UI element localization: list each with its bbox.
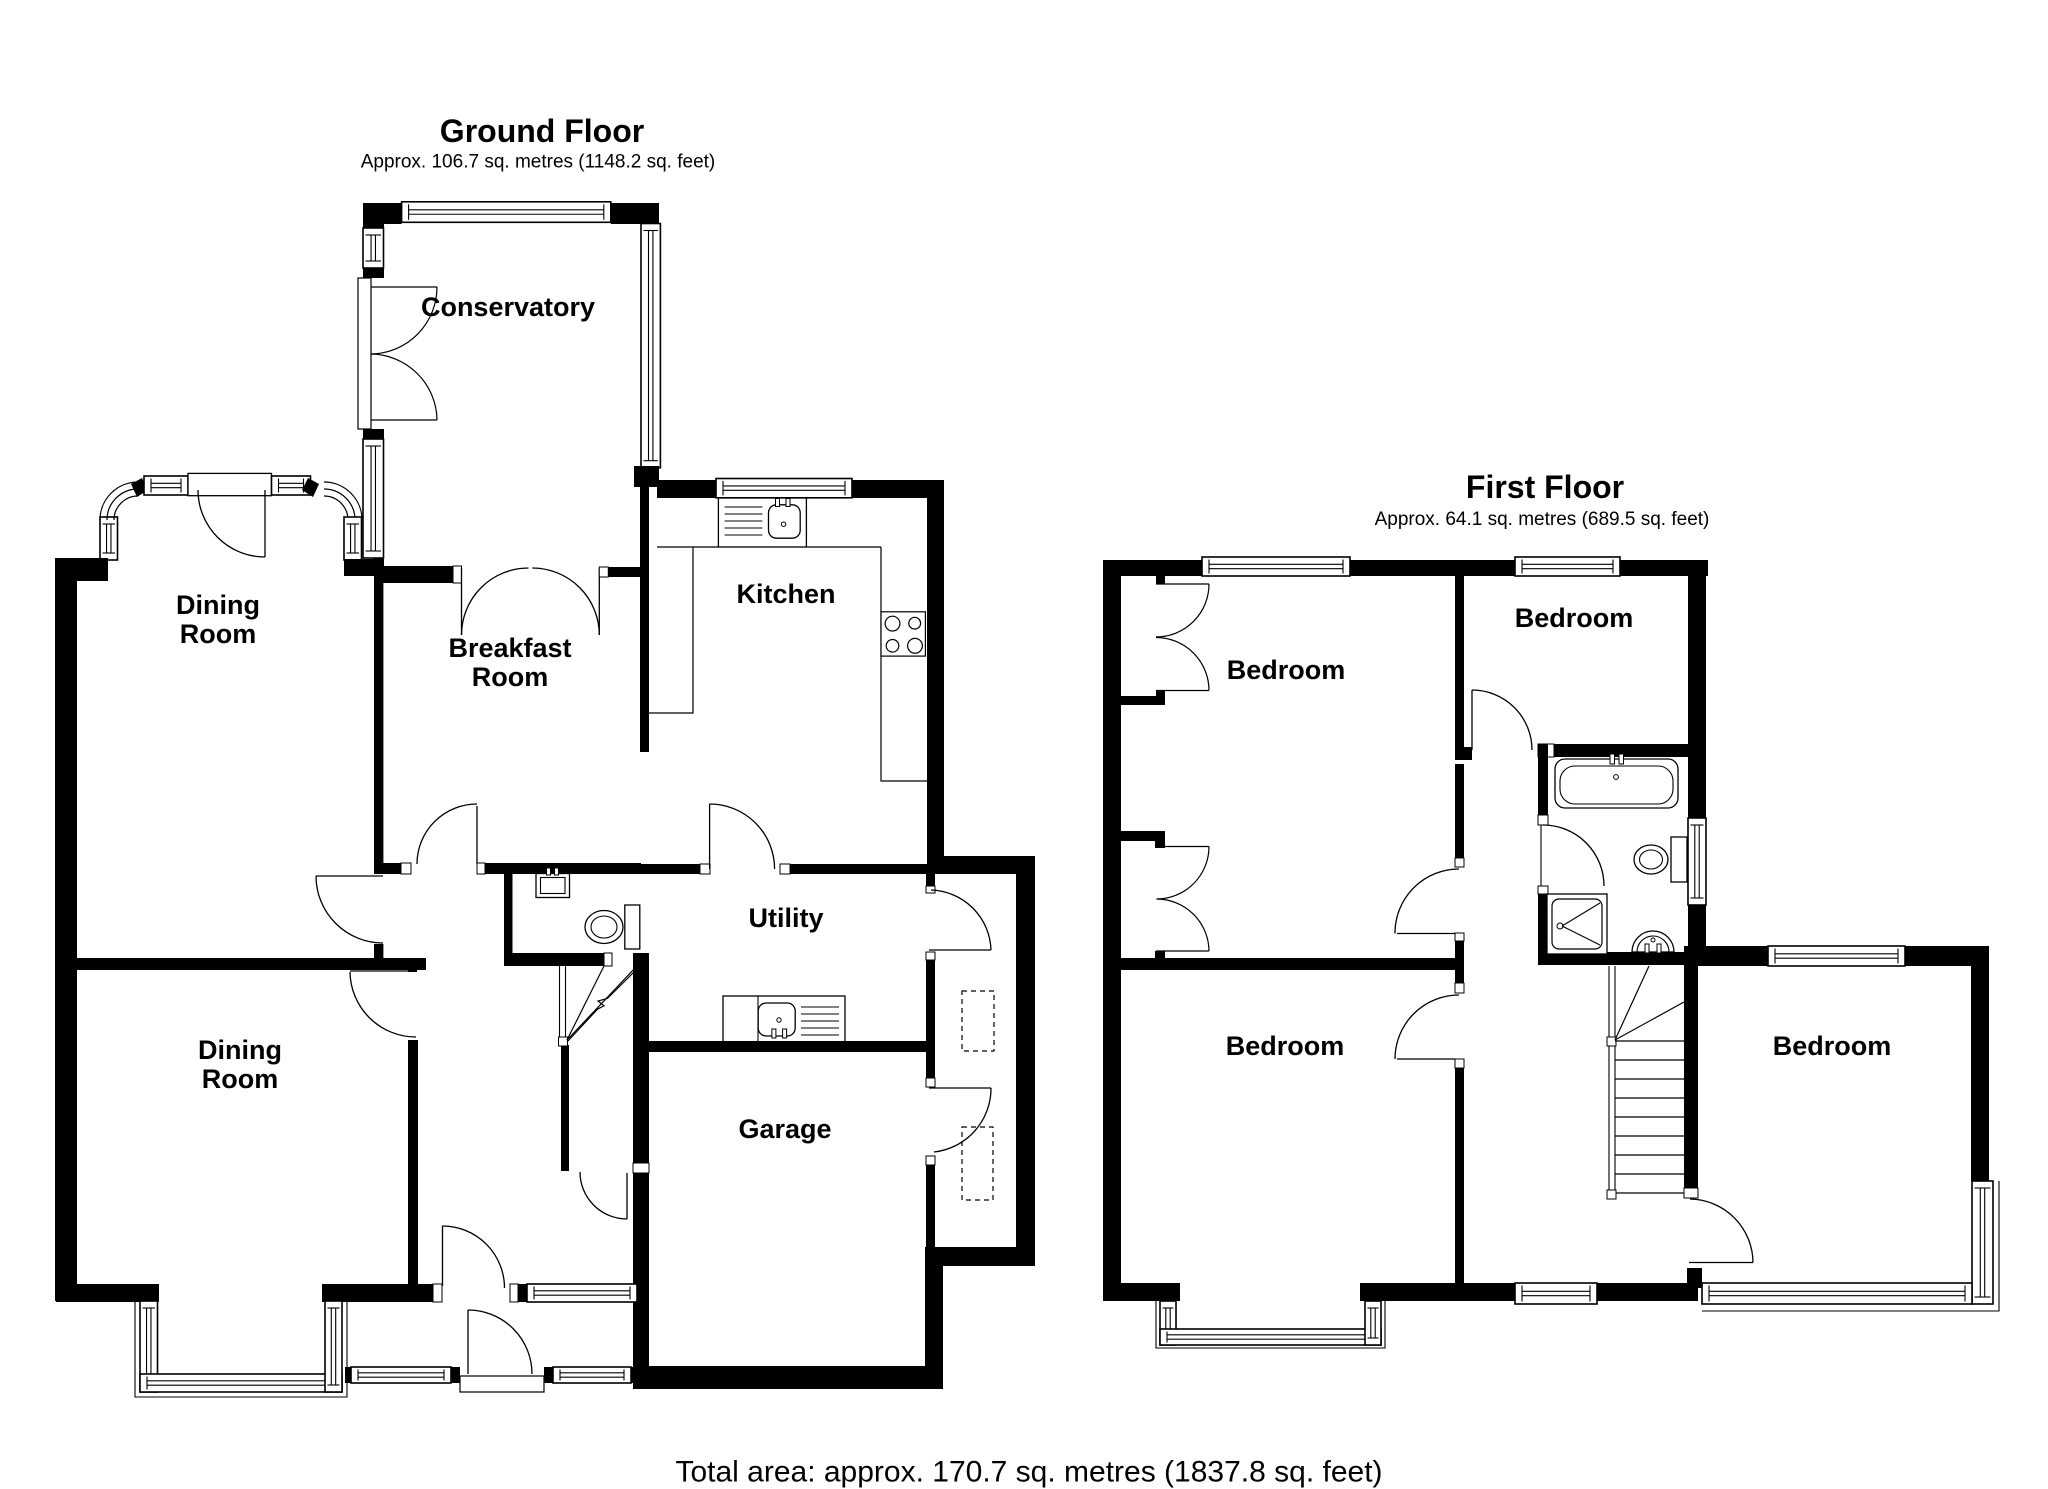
svg-text:Ground Floor: Ground Floor — [440, 113, 644, 149]
svg-text:Approx. 64.1 sq. metres (689.5: Approx. 64.1 sq. metres (689.5 sq. feet) — [1375, 509, 1710, 530]
svg-text:Utility: Utility — [748, 903, 823, 933]
svg-text:Total area: approx. 170.7 sq.: Total area: approx. 170.7 sq. metres (18… — [675, 1456, 1382, 1489]
svg-text:First Floor: First Floor — [1466, 469, 1624, 505]
svg-text:Bedroom: Bedroom — [1227, 655, 1346, 685]
svg-text:Room: Room — [472, 662, 549, 692]
svg-text:Room: Room — [202, 1064, 279, 1094]
svg-text:Dining: Dining — [176, 590, 260, 620]
svg-text:Breakfast: Breakfast — [448, 633, 571, 663]
svg-text:Conservatory: Conservatory — [421, 292, 595, 322]
svg-text:Bedroom: Bedroom — [1515, 603, 1634, 633]
svg-text:Dining: Dining — [198, 1035, 282, 1065]
svg-text:Bedroom: Bedroom — [1226, 1031, 1345, 1061]
svg-text:Bedroom: Bedroom — [1773, 1031, 1892, 1061]
svg-text:Kitchen: Kitchen — [736, 579, 835, 609]
svg-text:Room: Room — [180, 619, 257, 649]
svg-text:Garage: Garage — [738, 1114, 831, 1144]
svg-text:Approx. 106.7 sq. metres (1148: Approx. 106.7 sq. metres (1148.2 sq. fee… — [361, 152, 716, 173]
